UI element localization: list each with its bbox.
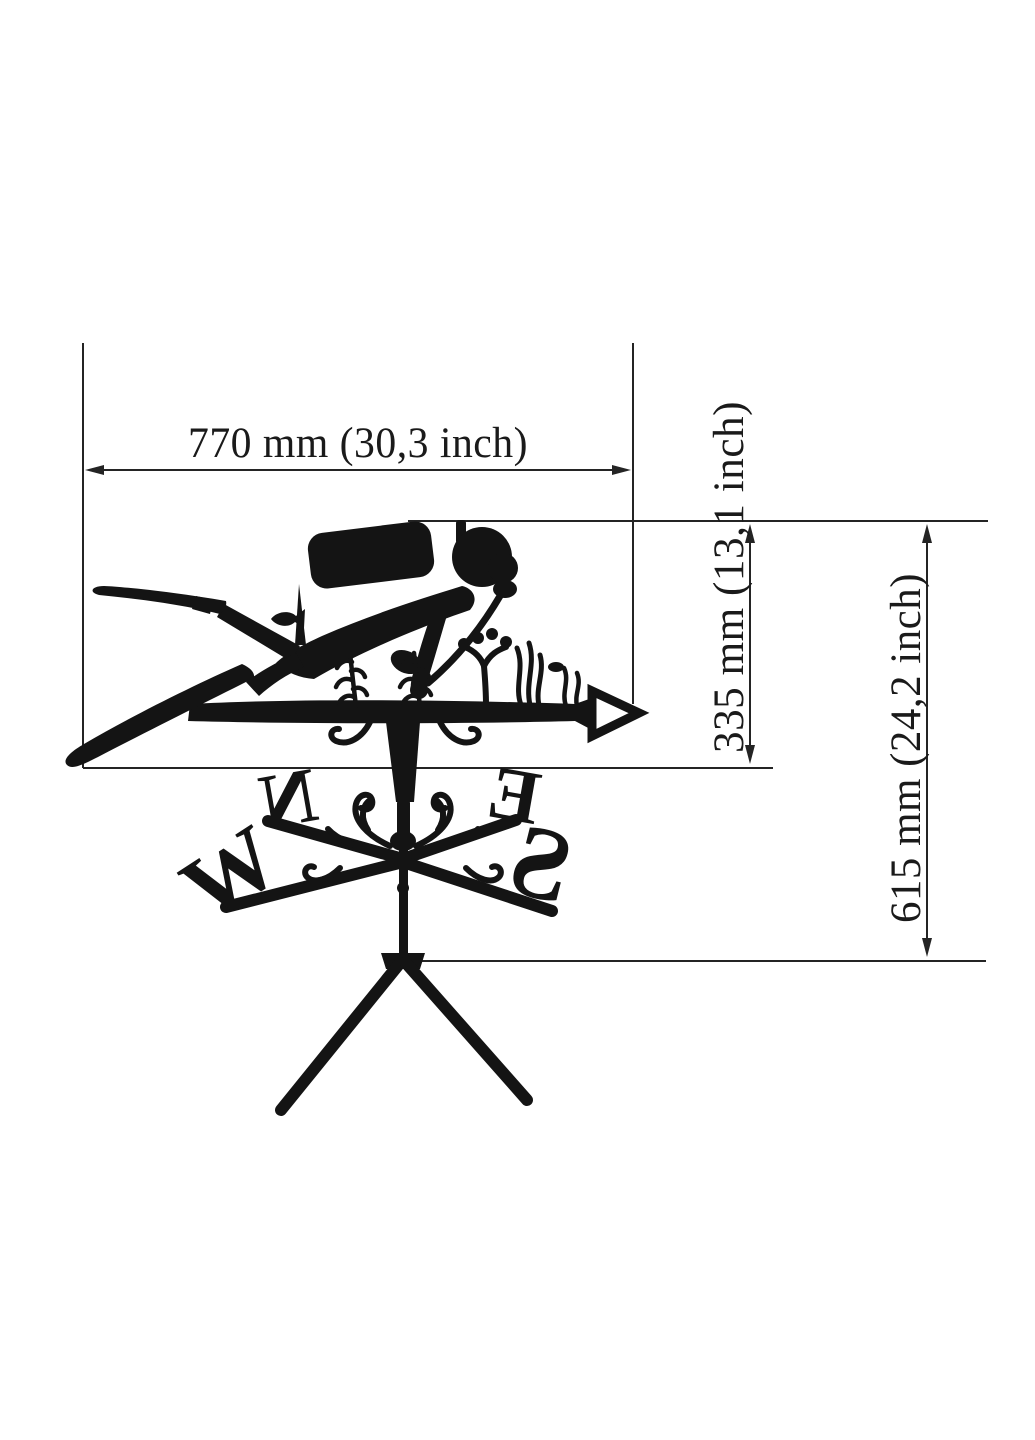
coral-sprig (458, 628, 512, 705)
fern-sprig (336, 653, 367, 706)
compass-rose: N E W S (164, 750, 584, 941)
compass-letter-north: N (253, 750, 324, 845)
fork-leg-left (281, 963, 400, 1110)
arrowhead-left-icon (85, 465, 104, 475)
dimension-total-height: 615 mm (24,2 inch) (883, 524, 932, 957)
fork-legs (281, 963, 527, 1110)
weathervane-silhouette: N E W S (66, 520, 639, 1110)
arrowhead-down-icon (922, 938, 932, 957)
dimension-total-height-label: 615 mm (24,2 inch) (883, 573, 930, 923)
arrowhead-right-icon (612, 465, 631, 475)
diver-mask (488, 553, 518, 583)
product-dimension-diagram: 770 mm (30,3 inch) 335 mm (13,1 inch) 61… (0, 0, 1035, 1440)
mount-rod (397, 800, 410, 836)
lower-rod (399, 848, 408, 958)
dimension-vane-height-label: 335 mm (13,1 inch) (706, 401, 753, 753)
vane-arrowhead-icon (592, 691, 639, 736)
arrowhead-up-icon (922, 524, 932, 543)
fork-leg-right (406, 963, 527, 1100)
dimension-vane-height: 335 mm (13,1 inch) (706, 401, 755, 764)
dimension-width: 770 mm (30,3 inch) (85, 420, 631, 475)
kelp-sprig (517, 643, 541, 705)
scuba-diver-silhouette (66, 520, 518, 767)
dimension-width-label: 770 mm (30,3 inch) (188, 420, 528, 467)
mount-bracket (386, 722, 420, 802)
vane-mount (386, 722, 420, 851)
air-tank (306, 520, 436, 591)
weathervane-drawing: 770 mm (30,3 inch) 335 mm (13,1 inch) 61… (0, 0, 1035, 1440)
small-tuft (548, 662, 579, 706)
